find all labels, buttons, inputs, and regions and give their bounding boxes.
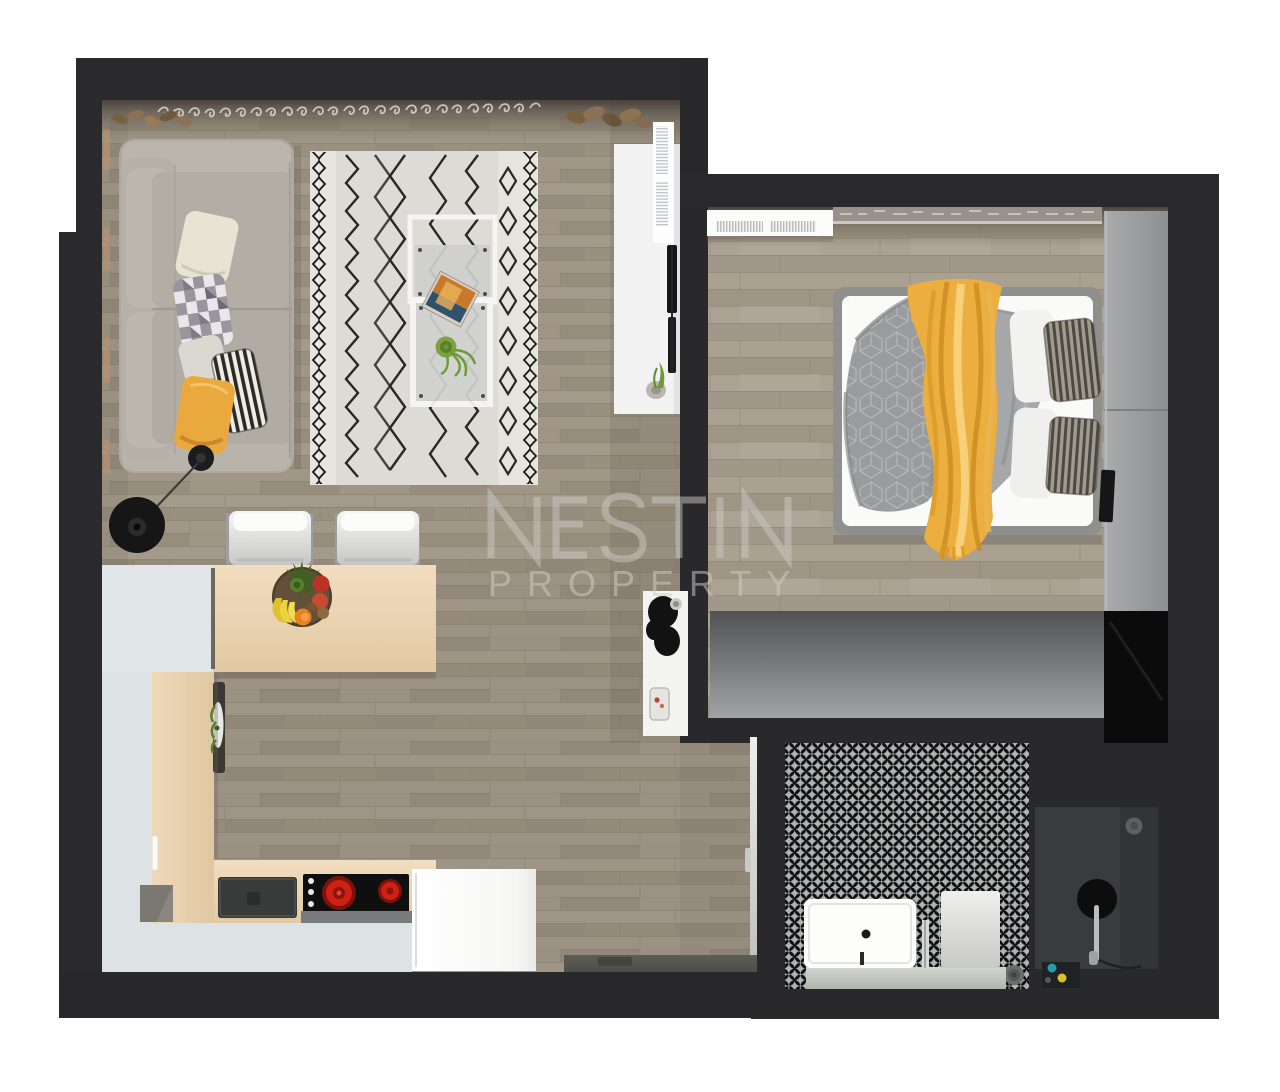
svg-text:PROPERTY: PROPERTY <box>488 563 805 604</box>
